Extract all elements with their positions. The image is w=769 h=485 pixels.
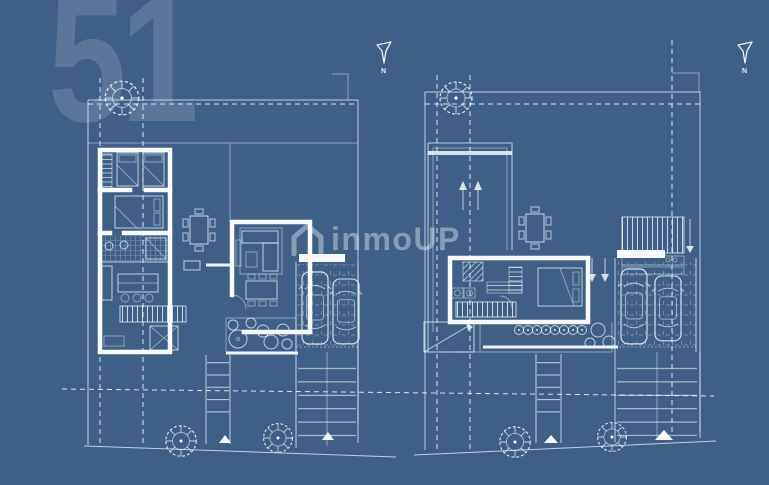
- brand-watermark: inmoUP: [289, 222, 461, 256]
- north-label: N: [381, 68, 386, 75]
- twin-bed-icon: [143, 153, 164, 186]
- street-edge: [84, 446, 396, 457]
- kitchen-counter-icon: [487, 282, 522, 293]
- tree-icon: [105, 81, 139, 115]
- house-icon: [289, 222, 326, 256]
- entrance-triangle-icon: [219, 435, 231, 443]
- tree-icon: [166, 426, 196, 456]
- dining-table-icon: [183, 209, 215, 251]
- double-bed-icon: [115, 196, 163, 228]
- suite: [450, 258, 588, 322]
- carport: [615, 250, 696, 352]
- footpath: [536, 354, 561, 443]
- double-bed-icon: [538, 268, 582, 306]
- sofa-icon: [242, 231, 278, 271]
- laundry-icons: [452, 288, 475, 298]
- bench-icon: [104, 336, 124, 346]
- doormat-icon: [184, 261, 200, 270]
- north-arrow-icon: N: [377, 42, 391, 75]
- ramp: [424, 322, 474, 352]
- stairs-icon: [120, 306, 186, 322]
- wardrobe-icon: [102, 154, 112, 188]
- bathroom: [102, 236, 168, 261]
- north-label: N: [742, 68, 747, 75]
- street-edge: [414, 441, 716, 455]
- twin-bed-icon: [117, 153, 138, 186]
- carport: [296, 254, 362, 352]
- closet-icon: [463, 262, 483, 281]
- tree-icon: [264, 424, 293, 453]
- tree-icon: [500, 427, 530, 457]
- planter-row-icon: [515, 326, 587, 335]
- north-arrow-icon: N: [738, 42, 752, 75]
- tree-icon: [440, 82, 472, 114]
- bedroom-wing: [100, 150, 186, 352]
- carport-beam: [617, 250, 665, 258]
- terrace-deck: [150, 326, 178, 350]
- driveway: [615, 352, 700, 442]
- dining-table-icon: [246, 274, 277, 306]
- blueprint-image: 51: [0, 0, 769, 485]
- dining-table-icon: [519, 207, 551, 249]
- terrace: [450, 322, 618, 352]
- patio-planters: [226, 318, 298, 353]
- stairs-icon: [456, 302, 516, 317]
- entrance-triangle-icon: [544, 435, 558, 443]
- brand-name: inmoUP: [326, 223, 461, 256]
- datum-dashed-line: [62, 389, 714, 396]
- upper-floor-plan: N: [414, 40, 752, 457]
- footpath: [206, 355, 230, 444]
- kitchen: [102, 266, 158, 302]
- down-arrows-icon: [588, 258, 609, 282]
